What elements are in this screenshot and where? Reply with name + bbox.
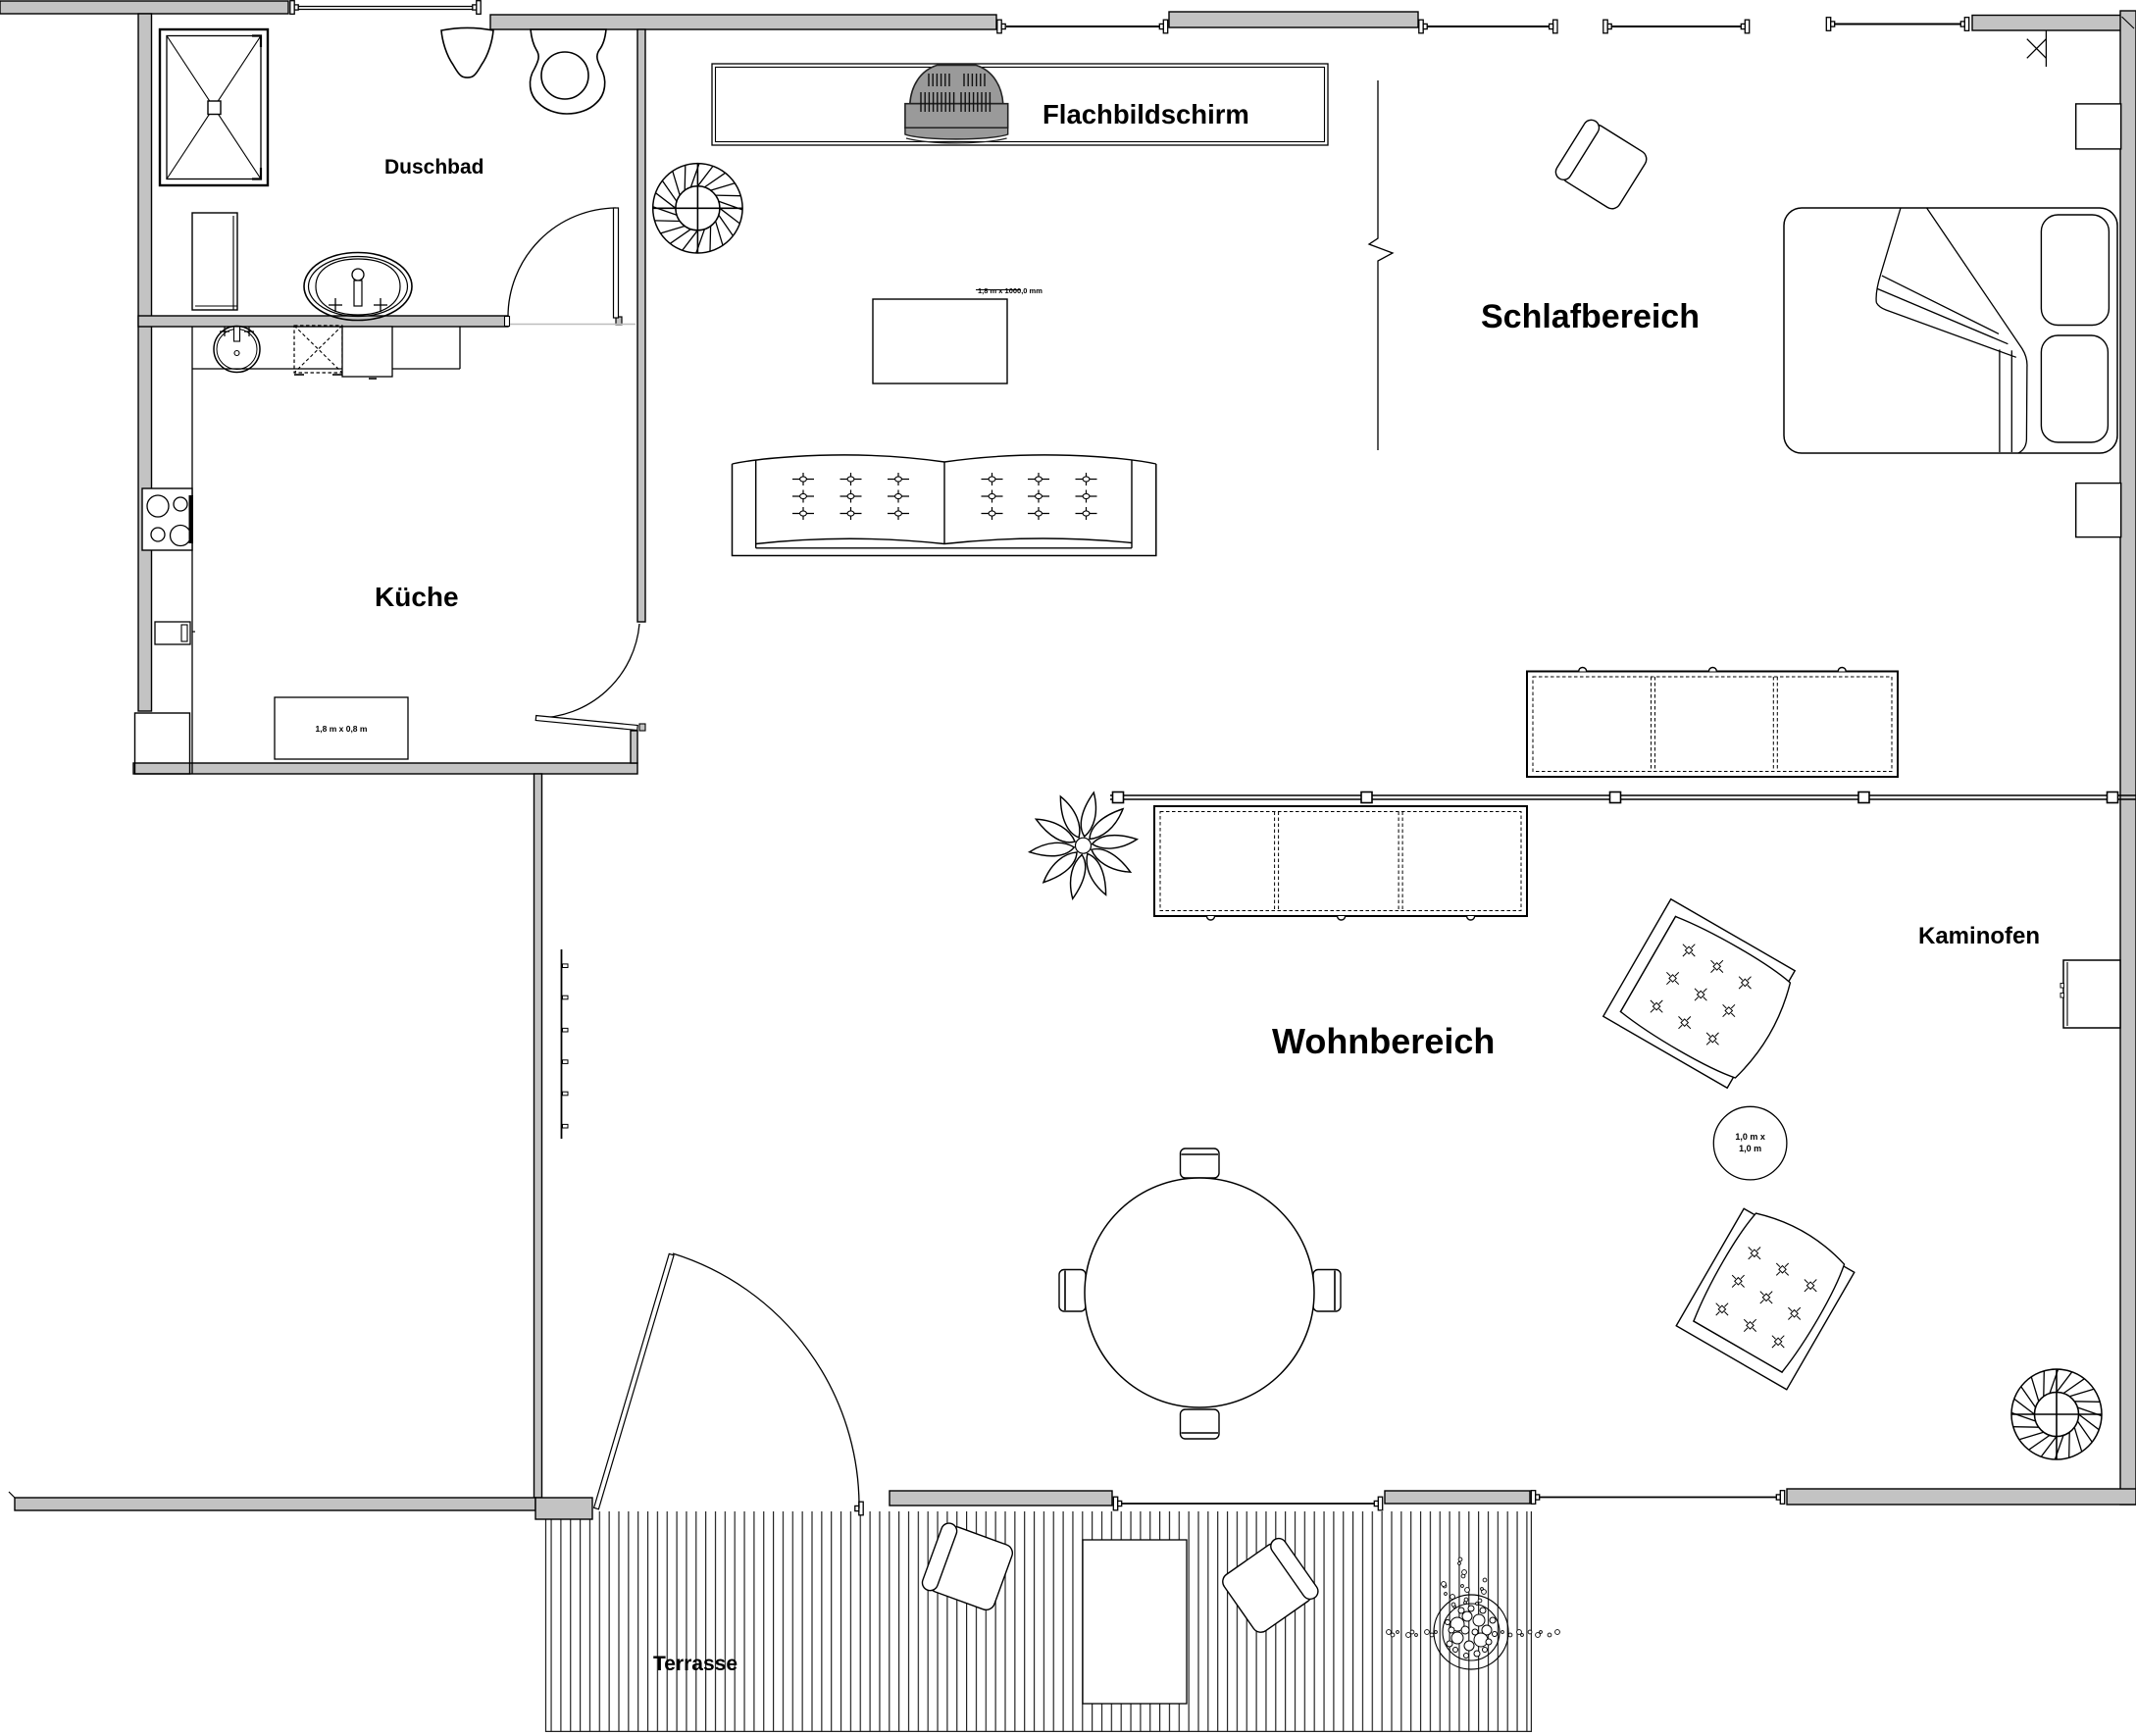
svg-text:Wohnbereich: Wohnbereich: [1272, 1021, 1495, 1061]
svg-text:Küche: Küche: [375, 582, 459, 612]
svg-text:Schlafbereich: Schlafbereich: [1481, 298, 1700, 335]
svg-text:Kaminofen: Kaminofen: [1918, 923, 2040, 949]
svg-text:Terrasse: Terrasse: [653, 1653, 737, 1675]
svg-text:1,0 m x: 1,0 m x: [1735, 1132, 1765, 1142]
svg-text:Flachbildschirm: Flachbildschirm: [1043, 99, 1249, 129]
svg-text:1,8 m x 1000,0 mm: 1,8 m x 1000,0 mm: [978, 286, 1043, 295]
svg-text:1,8 m x 0,8 m: 1,8 m x 0,8 m: [316, 724, 368, 734]
svg-text:Duschbad: Duschbad: [384, 156, 484, 179]
svg-text:1,0 m: 1,0 m: [1739, 1144, 1761, 1153]
